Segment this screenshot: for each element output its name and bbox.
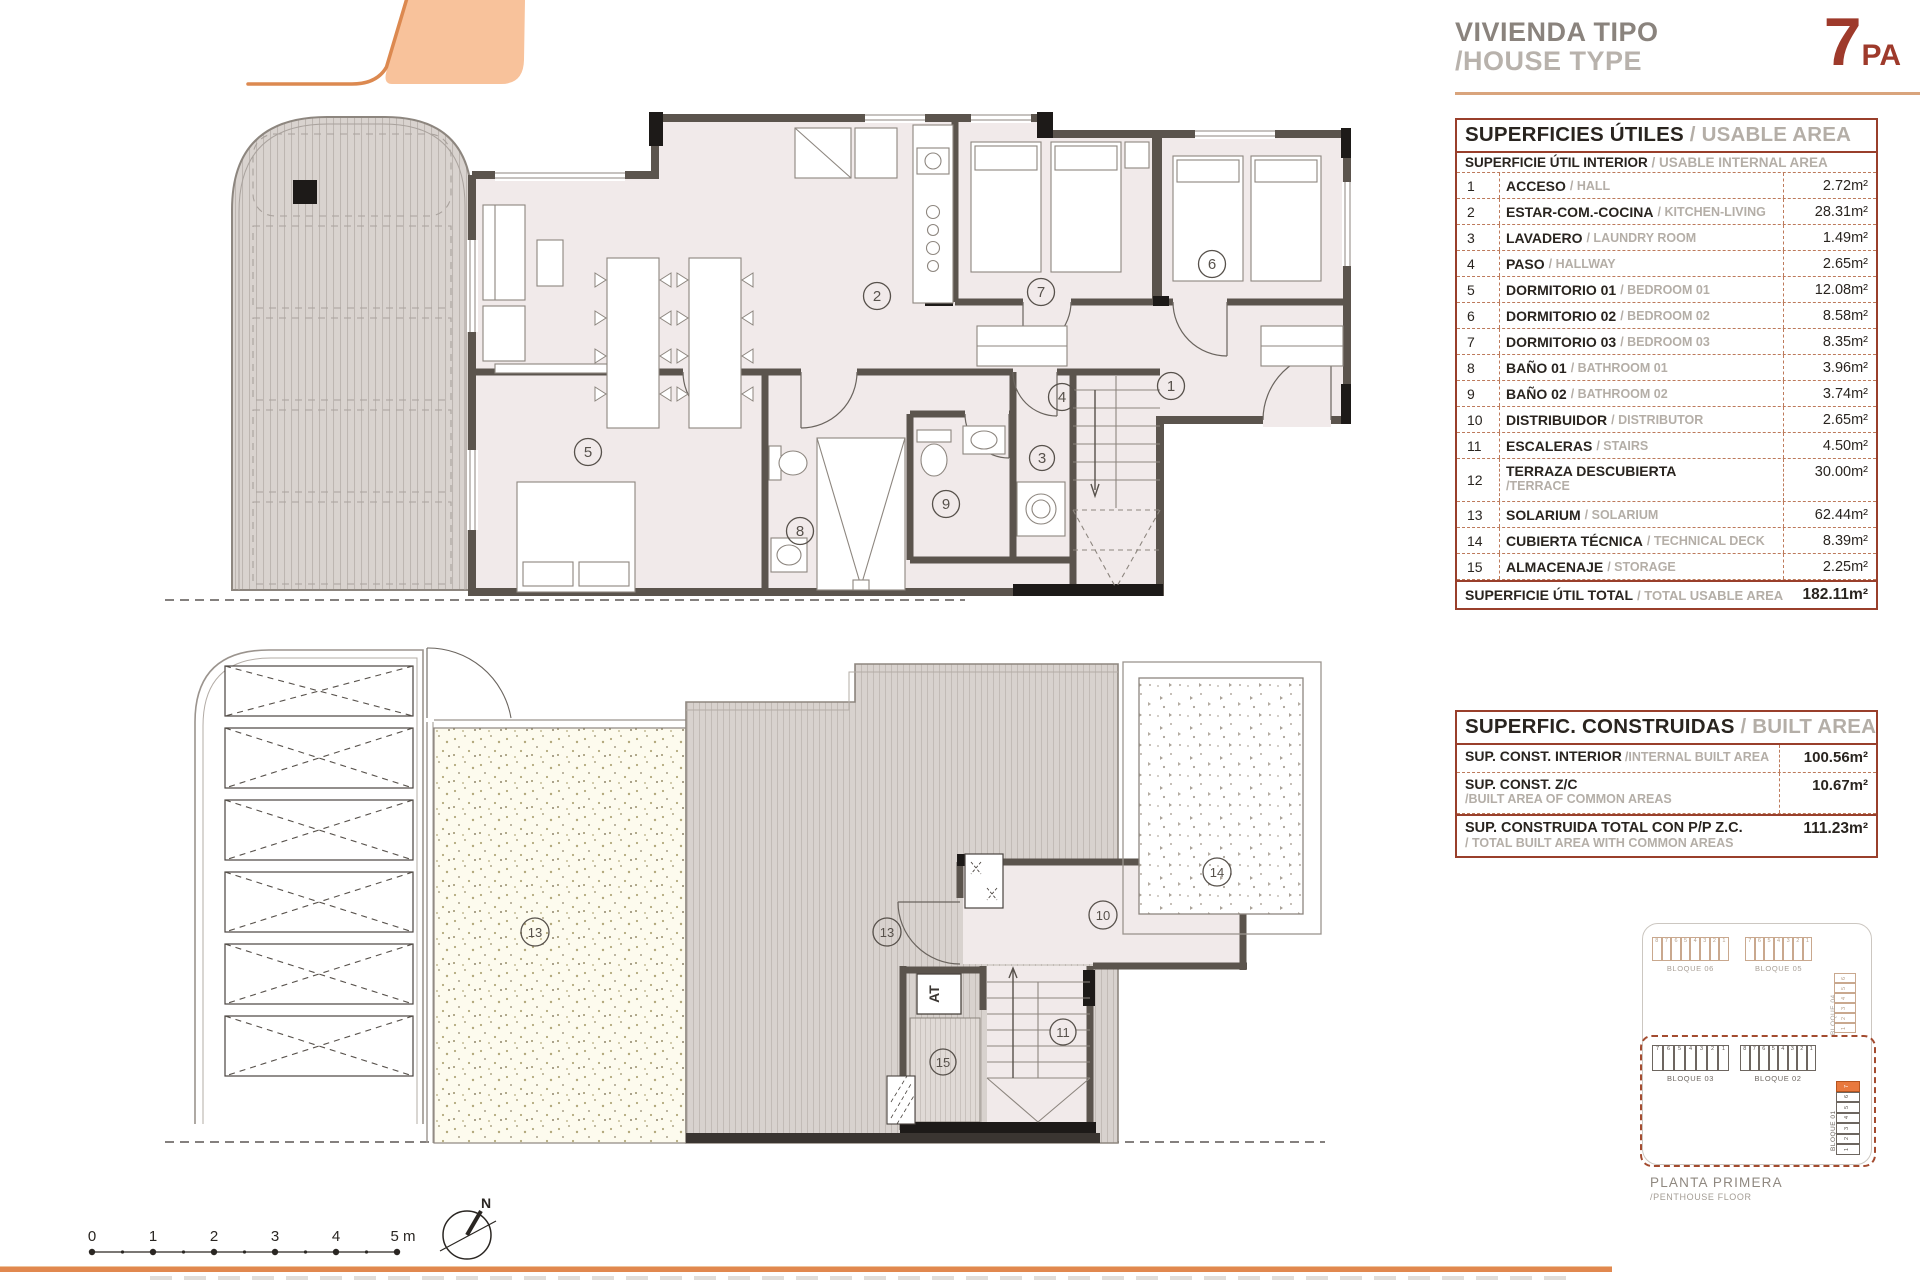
unit-cell: 5 <box>1764 937 1774 961</box>
solarium-gravel <box>427 720 686 1143</box>
row-area: 2.72m² <box>1783 173 1876 198</box>
row-area: 30.00m² <box>1783 459 1876 501</box>
svg-text:9: 9 <box>942 496 950 513</box>
cutoff-text-fragment <box>150 1276 1570 1280</box>
usable-total-row: SUPERFICIE ÚTIL TOTAL / TOTAL USABLE ARE… <box>1457 580 1876 608</box>
usable-table-title: SUPERFICIES ÚTILES / USABLE AREA <box>1457 120 1876 153</box>
unit-cell: 4 <box>1834 993 1856 1003</box>
unit-cell: 5 <box>1681 937 1691 961</box>
table-row: 9 BAÑO 02/ BATHROOM 02 3.74m² <box>1457 381 1876 407</box>
table-row: 14 CUBIERTA TÉCNICA/ TECHNICAL DECK 8.39… <box>1457 528 1876 554</box>
table-row: 8 BAÑO 01/ BATHROOM 01 3.96m² <box>1457 355 1876 381</box>
unit-cell: 7 <box>1662 937 1672 961</box>
table-row: SUP. CONST. Z/C/BUILT AREA OF COMMON ARE… <box>1457 773 1876 814</box>
title-en: /HOUSE TYPE <box>1455 47 1659 76</box>
usable-sub-en: / USABLE INTERNAL AREA <box>1652 155 1828 170</box>
row-name: BAÑO 01/ BATHROOM 01 <box>1500 355 1783 380</box>
block-01: 7654321 <box>1836 1081 1860 1155</box>
unit-cell: 7 <box>1836 1081 1860 1092</box>
row-name: SUP. CONST. Z/C/BUILT AREA OF COMMON ARE… <box>1457 773 1779 813</box>
row-name: SOLARIUM/ SOLARIUM <box>1500 502 1783 527</box>
scale-tick-2: 2 <box>210 1228 218 1245</box>
row-area: 2.65m² <box>1783 407 1876 432</box>
row-name: ALMACENAJE/ STORAGE <box>1500 554 1783 579</box>
unit-cell: 8 <box>1740 1045 1750 1071</box>
row-area: 10.67m² <box>1779 773 1876 813</box>
storage-floor <box>910 1018 980 1122</box>
row-name: DORMITORIO 03/ BEDROOM 03 <box>1500 329 1783 354</box>
table-row: 3 LAVADERO/ LAUNDRY ROOM 1.49m² <box>1457 225 1876 251</box>
usable-total-en: / TOTAL USABLE AREA <box>1637 588 1783 603</box>
unit-cell: 6 <box>1759 1045 1769 1071</box>
block-02: 87654321 BLOQUE 02 <box>1740 1045 1816 1083</box>
row-name: CUBIERTA TÉCNICA/ TECHNICAL DECK <box>1500 528 1783 553</box>
block-06-cells: 87654321 <box>1652 937 1729 961</box>
house-type-code: 7PA <box>1824 10 1915 75</box>
block-06: 87654321 BLOQUE 06 <box>1652 937 1729 973</box>
unit-cell: 4 <box>1690 937 1700 961</box>
block-03-cells: 7654321 <box>1652 1045 1729 1071</box>
north-label: N <box>481 1195 491 1211</box>
table-row: 13 SOLARIUM/ SOLARIUM 62.44m² <box>1457 502 1876 528</box>
unit-cell: 6 <box>1836 1092 1860 1103</box>
block-01-cells: 7654321 <box>1836 1081 1860 1155</box>
row-name: DISTRIBUIDOR/ DISTRIBUTOR <box>1500 407 1783 432</box>
usable-rows: 1 ACCESO/ HALL 2.72m² 2 ESTAR-COM.-COCIN… <box>1457 173 1876 580</box>
svg-text:7: 7 <box>1037 284 1045 301</box>
block-05-label: BLOQUE 05 <box>1745 964 1812 973</box>
unit-cell: 8 <box>1652 937 1662 961</box>
row-name: LAVADERO/ LAUNDRY ROOM <box>1500 225 1783 250</box>
unit-cell: 5 <box>1834 983 1856 993</box>
table-row: 4 PASO/ HALLWAY 2.65m² <box>1457 251 1876 277</box>
row-number: 7 <box>1457 329 1500 354</box>
unit-cell: 3 <box>1783 937 1793 961</box>
scale-tick-0: 0 <box>88 1228 96 1245</box>
scale-tick-3: 3 <box>271 1228 279 1245</box>
usable-sub-es: SUPERFICIE ÚTIL INTERIOR <box>1465 155 1648 170</box>
unit-cell: 1 <box>1807 1045 1817 1071</box>
built-total-en: / TOTAL BUILT AREA WITH COMMON AREAS <box>1465 836 1743 850</box>
unit-cell: 4 <box>1778 1045 1788 1071</box>
lower-floor-plan: AT 13 13 10 11 14 15 <box>165 630 1335 1170</box>
upper-floor-plan: 1 2 3 4 5 6 7 8 9 <box>165 90 1395 610</box>
built-total-es: SUP. CONSTRUIDA TOTAL CON P/P Z.C. <box>1465 820 1743 836</box>
unit-cell: 7 <box>1745 937 1755 961</box>
row-name: DORMITORIO 01/ BEDROOM 01 <box>1500 277 1783 302</box>
unit-cell: 3 <box>1788 1045 1798 1071</box>
built-total-row: SUP. CONSTRUIDA TOTAL CON P/P Z.C. / TOT… <box>1457 814 1876 856</box>
unit-cell: 7 <box>1750 1045 1760 1071</box>
row-number: 9 <box>1457 381 1500 406</box>
svg-text:11: 11 <box>1056 1025 1070 1040</box>
row-number: 11 <box>1457 433 1500 458</box>
row-area: 8.39m² <box>1783 528 1876 553</box>
block-05-cells: 7654321 <box>1745 937 1812 961</box>
row-area: 2.65m² <box>1783 251 1876 276</box>
table-row: 10 DISTRIBUIDOR/ DISTRIBUTOR 2.65m² <box>1457 407 1876 433</box>
usable-title-es: SUPERFICIES ÚTILES <box>1465 123 1684 146</box>
unit-cell: 2 <box>1834 1013 1856 1023</box>
footer-rule <box>0 1266 1612 1272</box>
type-number: 7 <box>1824 4 1862 80</box>
svg-text:14: 14 <box>1210 865 1224 880</box>
built-rows: SUP. CONST. INTERIOR/INTERNAL BUILT AREA… <box>1457 745 1876 814</box>
svg-text:2: 2 <box>873 288 881 305</box>
block-04: 654321 <box>1834 973 1856 1033</box>
bottom-wall <box>686 1133 1100 1143</box>
table-row: 12 TERRAZA DESCUBIERTA/TERRACE 30.00m² <box>1457 459 1876 502</box>
table-row: 11 ESCALERAS/ STAIRS 4.50m² <box>1457 433 1876 459</box>
built-title-es: SUPERFIC. CONSTRUIDAS <box>1465 715 1735 738</box>
unit-cell: 1 <box>1719 937 1729 961</box>
title-es: VIVIENDA TIPO <box>1455 18 1659 47</box>
site-key-plan: 87654321 BLOQUE 06 7654321 BLOQUE 05 654… <box>1642 923 1918 1233</box>
unit-cell: 1 <box>1836 1144 1860 1155</box>
row-area: 8.58m² <box>1783 303 1876 328</box>
svg-text:8: 8 <box>796 523 804 540</box>
row-area: 4.50m² <box>1783 433 1876 458</box>
header: VIVIENDA TIPO /HOUSE TYPE 7PA <box>1455 10 1915 76</box>
unit-cell: 5 <box>1836 1102 1860 1113</box>
table-row: 2 ESTAR-COM.-COCINA/ KITCHEN-LIVING 28.3… <box>1457 199 1876 225</box>
row-number: 4 <box>1457 251 1500 276</box>
at-label: AT <box>926 985 942 1003</box>
floor-label-en: /PENTHOUSE FLOOR <box>1650 1192 1752 1202</box>
row-number: 1 <box>1457 173 1500 198</box>
svg-text:4: 4 <box>1058 389 1066 406</box>
scale-tick-5: 5 m <box>390 1228 415 1245</box>
built-area-table: SUPERFIC. CONSTRUIDAS / BUILT AREA SUP. … <box>1455 710 1878 858</box>
row-number: 8 <box>1457 355 1500 380</box>
row-area: 100.56m² <box>1779 745 1876 772</box>
technical-deck <box>1123 662 1321 934</box>
unit-cell: 6 <box>1671 937 1681 961</box>
unit-cell: 3 <box>1834 1003 1856 1013</box>
row-name: SUP. CONST. INTERIOR/INTERNAL BUILT AREA <box>1457 745 1779 772</box>
built-title-en: / BUILT AREA <box>1741 715 1877 738</box>
unit-cell: 5 <box>1769 1045 1779 1071</box>
svg-text:13: 13 <box>880 925 894 940</box>
logo-shape <box>386 0 525 84</box>
row-area: 3.74m² <box>1783 381 1876 406</box>
row-area: 28.31m² <box>1783 199 1876 224</box>
logo-swoosh <box>248 0 410 84</box>
row-area: 8.35m² <box>1783 329 1876 354</box>
built-total-labels: SUP. CONSTRUIDA TOTAL CON P/P Z.C. / TOT… <box>1465 820 1743 850</box>
header-rule <box>1455 92 1920 95</box>
unit-cell: 6 <box>1834 973 1856 983</box>
entry-opening <box>1263 413 1331 427</box>
row-number: 10 <box>1457 407 1500 432</box>
row-name: DORMITORIO 02/ BEDROOM 02 <box>1500 303 1783 328</box>
table-row: 15 ALMACENAJE/ STORAGE 2.25m² <box>1457 554 1876 580</box>
block-03: 7654321 BLOQUE 03 <box>1652 1045 1729 1083</box>
row-number: 3 <box>1457 225 1500 250</box>
unit-cell: 4 <box>1836 1113 1860 1124</box>
svg-text:15: 15 <box>936 1055 950 1070</box>
unit-cell: 3 <box>1696 1045 1707 1071</box>
row-name: BAÑO 02/ BATHROOM 02 <box>1500 381 1783 406</box>
brand-logo <box>170 0 550 100</box>
built-table-title: SUPERFIC. CONSTRUIDAS / BUILT AREA <box>1457 712 1876 745</box>
unit-cell: 2 <box>1710 937 1720 961</box>
hatched-door <box>887 1076 915 1124</box>
gate-swing <box>427 648 511 718</box>
unit-cell: 2 <box>1836 1134 1860 1145</box>
unit-cell: 5 <box>1674 1045 1685 1071</box>
row-area: 2.25m² <box>1783 554 1876 579</box>
table-row: 7 DORMITORIO 03/ BEDROOM 03 8.35m² <box>1457 329 1876 355</box>
table-row: 6 DORMITORIO 02/ BEDROOM 02 8.58m² <box>1457 303 1876 329</box>
row-number: 5 <box>1457 277 1500 302</box>
svg-text:6: 6 <box>1208 256 1216 273</box>
row-number: 14 <box>1457 528 1500 553</box>
party-wall <box>1152 134 1162 302</box>
row-name: ESTAR-COM.-COCINA/ KITCHEN-LIVING <box>1500 199 1783 224</box>
usable-total-area: 182.11m² <box>1803 586 1869 604</box>
block-04-label: BLOQUE 04 <box>1830 994 1837 1035</box>
block-03-label: BLOQUE 03 <box>1652 1074 1729 1083</box>
svg-text:10: 10 <box>1096 908 1110 923</box>
scale-tick-1: 1 <box>149 1228 157 1245</box>
svg-text:13: 13 <box>528 925 542 940</box>
svg-text:5: 5 <box>584 444 592 461</box>
vent-shaft <box>965 854 1003 908</box>
row-area: 1.49m² <box>1783 225 1876 250</box>
at-cabinet: AT <box>917 974 961 1014</box>
floor-label-es: PLANTA PRIMERA <box>1650 1175 1783 1190</box>
type-suffix: PA <box>1862 39 1901 72</box>
unit-cell: 1 <box>1803 937 1813 961</box>
unit-cell: 7 <box>1652 1045 1663 1071</box>
block-04-cells: 654321 <box>1834 973 1856 1033</box>
row-name: PASO/ HALLWAY <box>1500 251 1783 276</box>
svg-text:1: 1 <box>1167 378 1175 395</box>
row-number: 13 <box>1457 502 1500 527</box>
block-02-label: BLOQUE 02 <box>1740 1074 1816 1083</box>
usable-table-subtitle: SUPERFICIE ÚTIL INTERIOR / USABLE INTERN… <box>1457 153 1876 173</box>
unit-cell: 4 <box>1685 1045 1696 1071</box>
pergola-structure <box>195 650 423 1124</box>
table-row: SUP. CONST. INTERIOR/INTERNAL BUILT AREA… <box>1457 745 1876 773</box>
north-arrow-icon: N <box>440 1195 496 1259</box>
row-name: ESCALERAS/ STAIRS <box>1500 433 1783 458</box>
block-02-cells: 87654321 <box>1740 1045 1816 1071</box>
terrace-column <box>293 180 317 204</box>
row-number: 6 <box>1457 303 1500 328</box>
unit-cell: 6 <box>1755 937 1765 961</box>
unit-cell: 2 <box>1797 1045 1807 1071</box>
row-number: 15 <box>1457 554 1500 579</box>
room-badge-11: 11 <box>1050 1019 1076 1045</box>
unit-cell: 1 <box>1834 1023 1856 1033</box>
svg-text:3: 3 <box>1038 450 1046 467</box>
row-area: 3.96m² <box>1783 355 1876 380</box>
unit-cell: 6 <box>1663 1045 1674 1071</box>
page-title: VIVIENDA TIPO /HOUSE TYPE <box>1455 10 1659 76</box>
block-01-label: BLOQUE 01 <box>1830 1110 1837 1151</box>
row-name: ACCESO/ HALL <box>1500 173 1783 198</box>
built-total-area: 111.23m² <box>1803 820 1868 850</box>
usable-total-es: SUPERFICIE ÚTIL TOTAL <box>1465 587 1633 603</box>
pergola-beams <box>225 666 413 1076</box>
row-number: 12 <box>1457 459 1500 501</box>
row-number: 2 <box>1457 199 1500 224</box>
unit-cell: 3 <box>1836 1123 1860 1134</box>
block-06-label: BLOQUE 06 <box>1652 964 1729 973</box>
row-area: 12.08m² <box>1783 277 1876 302</box>
unit-cell: 2 <box>1707 1045 1718 1071</box>
scale-bar: 0 1 2 3 4 5 m <box>88 1228 416 1255</box>
row-name: TERRAZA DESCUBIERTA/TERRACE <box>1500 459 1783 501</box>
unit-cell: 1 <box>1718 1045 1729 1071</box>
scale-tick-4: 4 <box>332 1228 340 1245</box>
table-row: 5 DORMITORIO 01/ BEDROOM 01 12.08m² <box>1457 277 1876 303</box>
scale-and-north: 0 1 2 3 4 5 m N <box>60 1195 530 1273</box>
block-05: 7654321 BLOQUE 05 <box>1745 937 1812 973</box>
unit-cell: 2 <box>1793 937 1803 961</box>
row-area: 62.44m² <box>1783 502 1876 527</box>
terrace-area <box>232 117 472 590</box>
usable-title-en: / USABLE AREA <box>1690 123 1851 146</box>
usable-area-table: SUPERFICIES ÚTILES / USABLE AREA SUPERFI… <box>1455 118 1878 610</box>
unit-cell: 3 <box>1700 937 1710 961</box>
table-row: 1 ACCESO/ HALL 2.72m² <box>1457 173 1876 199</box>
unit-cell: 4 <box>1774 937 1784 961</box>
